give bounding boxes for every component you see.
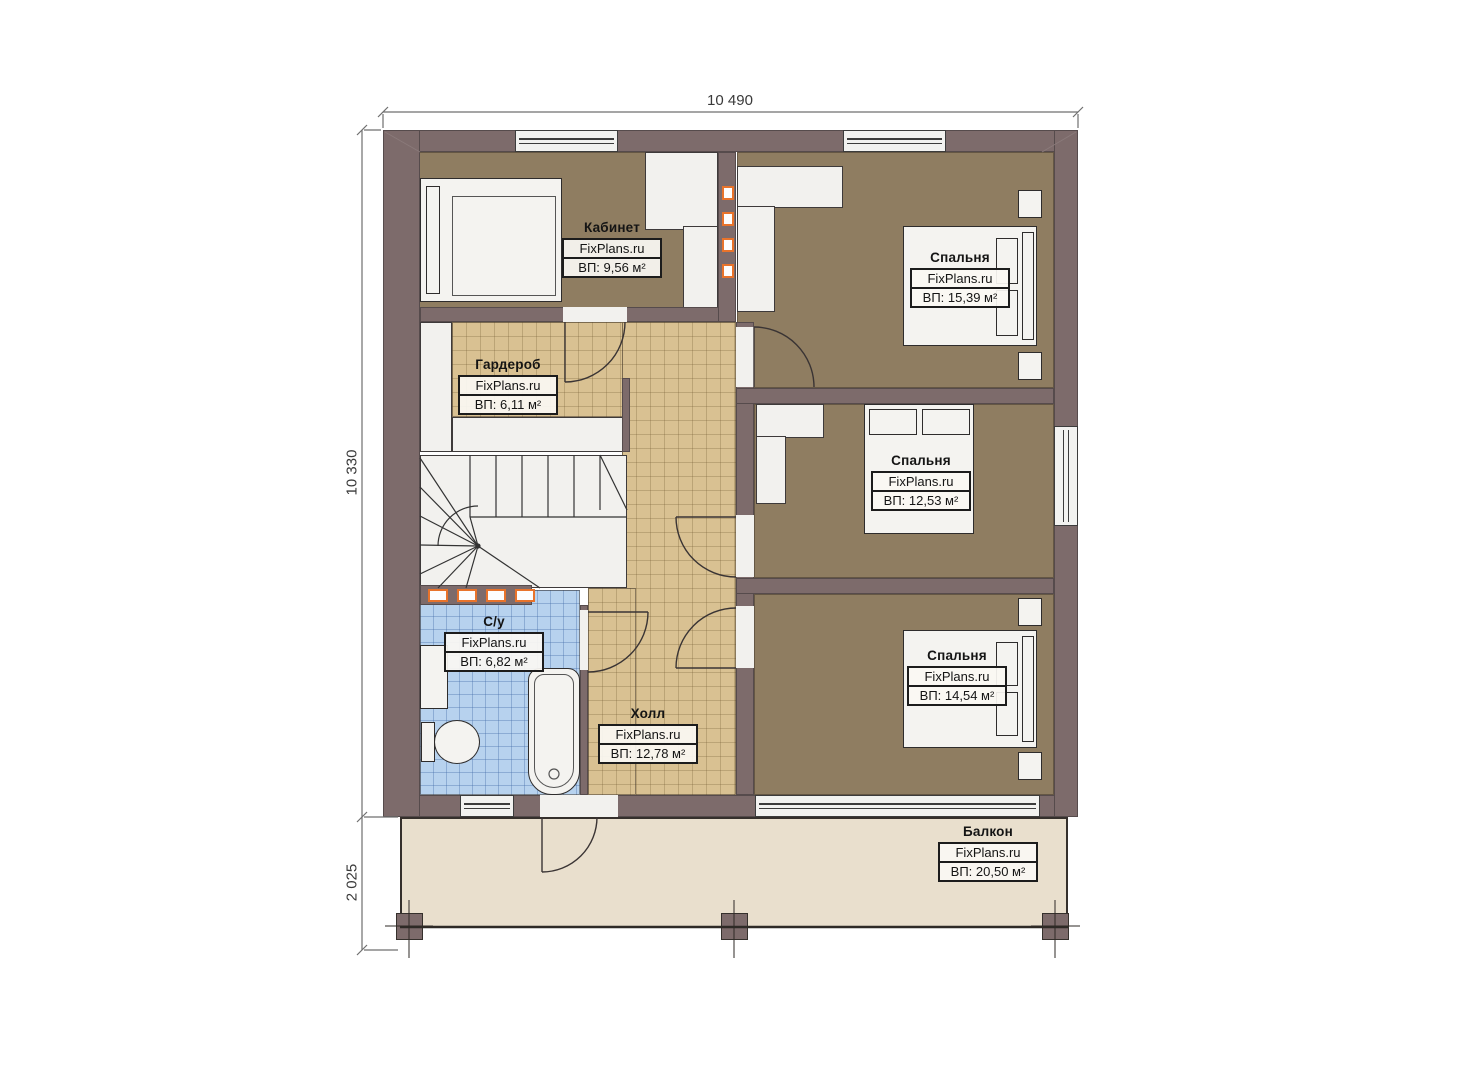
bathroom-door-opening (580, 610, 588, 670)
room-label-bedroom-mid: Спальня FixPlans.ru ВП: 12,53 м² (851, 453, 991, 511)
vent-grille-bathroom (428, 589, 535, 602)
bedroom-bottom-door-opening (736, 606, 754, 668)
dimension-width-top: 10 490 (680, 92, 780, 109)
bedroom-mid-door-opening (736, 515, 754, 577)
room-area: ВП: 14,54 м² (909, 687, 1005, 704)
brand-watermark: FixPlans.ru (909, 668, 1005, 687)
bedroom-top-closet-col (737, 206, 775, 312)
bedroom-top-door-opening (736, 327, 754, 387)
room-area: ВП: 6,11 м² (460, 396, 556, 413)
bedroom-top-nightstand-1 (1018, 190, 1042, 218)
bedroom-mid-pillow-1 (869, 409, 917, 435)
brand-watermark: FixPlans.ru (460, 377, 556, 396)
bathtub-inner (534, 674, 574, 788)
wall-wardrobe-east (622, 378, 630, 452)
bedroom-mid-closet-bar (756, 404, 824, 438)
balcony-post-right (1042, 913, 1069, 940)
brand-watermark: FixPlans.ru (564, 240, 660, 259)
room-label-bedroom-top: Спальня FixPlans.ru ВП: 15,39 м² (890, 250, 1030, 308)
room-name: Спальня (891, 453, 951, 468)
toilet-bowl (434, 720, 480, 764)
room-label-bedroom-bottom: Спальня FixPlans.ru ВП: 14,54 м² (887, 648, 1027, 706)
room-label-hall: Холл FixPlans.ru ВП: 12,78 м² (578, 706, 718, 764)
dimension-height-balcony: 2 025 (344, 853, 361, 913)
room-name: Спальня (930, 250, 990, 265)
bedroom-mid-closet-col (756, 436, 786, 504)
room-name: Холл (631, 706, 666, 721)
wardrobe-door-opening (563, 307, 627, 322)
bedroom-mid-pillow-2 (922, 409, 970, 435)
room-name: Спальня (927, 648, 987, 663)
window-bedroom-mid (1054, 426, 1078, 526)
office-closet-2 (683, 226, 718, 312)
balcony-post-middle (721, 913, 748, 940)
wall-bedrooms-1-2 (736, 388, 1054, 404)
office-bed-blanket (452, 196, 556, 296)
window-bedroom-top (843, 130, 946, 152)
floor-plan-canvas: 10 490 10 330 2 025 Кабинет FixPlans.ru … (0, 0, 1473, 1080)
bedroom-bottom-nightstand-1 (1018, 598, 1042, 626)
room-name: Балкон (963, 824, 1013, 839)
room-area: ВП: 6,82 м² (446, 653, 542, 670)
exterior-wall-top (383, 130, 1078, 152)
exterior-wall-left (383, 130, 420, 817)
bedroom-top-nightstand-2 (1018, 352, 1042, 380)
room-label-wardrobe: Гардероб FixPlans.ru ВП: 6,11 м² (438, 357, 578, 415)
brand-watermark: FixPlans.ru (600, 726, 696, 745)
dimension-height-main: 10 330 (344, 441, 361, 505)
brand-watermark: FixPlans.ru (912, 270, 1008, 289)
stairwell (420, 455, 627, 588)
room-area: ВП: 15,39 м² (912, 289, 1008, 306)
window-bedroom-bottom (755, 795, 1040, 817)
brand-watermark: FixPlans.ru (873, 473, 969, 492)
room-area: ВП: 20,50 м² (940, 863, 1036, 880)
room-area: ВП: 12,53 м² (873, 492, 969, 509)
bedroom-top-closet-bar (737, 166, 843, 208)
room-name: С/у (483, 614, 505, 629)
wall-bedrooms-2-3 (736, 578, 1054, 594)
room-label-balcony: Балкон FixPlans.ru ВП: 20,50 м² (918, 824, 1058, 882)
wardrobe-shelf-bottom (452, 417, 627, 452)
vent-grille-shaft (722, 186, 734, 278)
toilet-tank (421, 722, 435, 762)
balcony-post-left (396, 913, 423, 940)
office-closet (645, 152, 718, 230)
bedroom-bottom-nightstand-2 (1018, 752, 1042, 780)
room-label-bathroom: С/у FixPlans.ru ВП: 6,82 м² (424, 614, 564, 672)
room-name: Гардероб (475, 357, 540, 372)
room-name: Кабинет (584, 220, 640, 235)
room-area: ВП: 9,56 м² (564, 259, 660, 276)
room-area: ВП: 12,78 м² (600, 745, 696, 762)
balcony-door-opening (540, 795, 618, 817)
brand-watermark: FixPlans.ru (940, 844, 1036, 863)
brand-watermark: FixPlans.ru (446, 634, 542, 653)
window-bathroom (460, 795, 514, 817)
window-office (515, 130, 618, 152)
office-bed-headboard (426, 186, 440, 294)
room-label-office: Кабинет FixPlans.ru ВП: 9,56 м² (542, 220, 682, 278)
